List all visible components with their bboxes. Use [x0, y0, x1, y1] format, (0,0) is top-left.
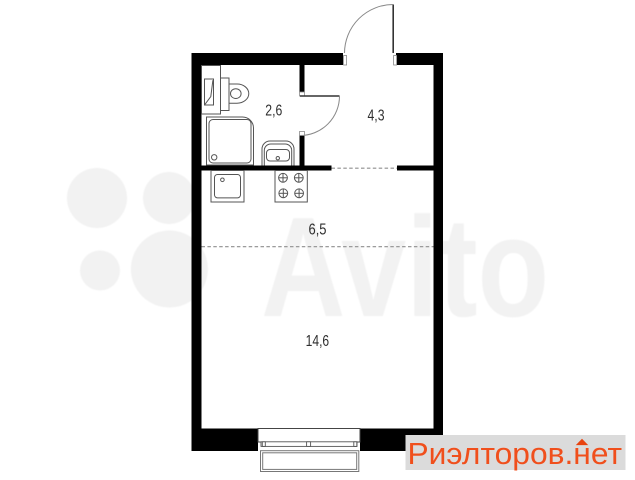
svg-text:6,5: 6,5: [309, 222, 327, 239]
svg-text:14,6: 14,6: [306, 333, 330, 350]
svg-text:2,6: 2,6: [265, 102, 282, 119]
svg-text:Риэлторов.нет: Риэлторов.нет: [408, 437, 623, 471]
svg-text:Avito: Avito: [261, 188, 549, 347]
svg-text:4,3: 4,3: [368, 108, 385, 125]
